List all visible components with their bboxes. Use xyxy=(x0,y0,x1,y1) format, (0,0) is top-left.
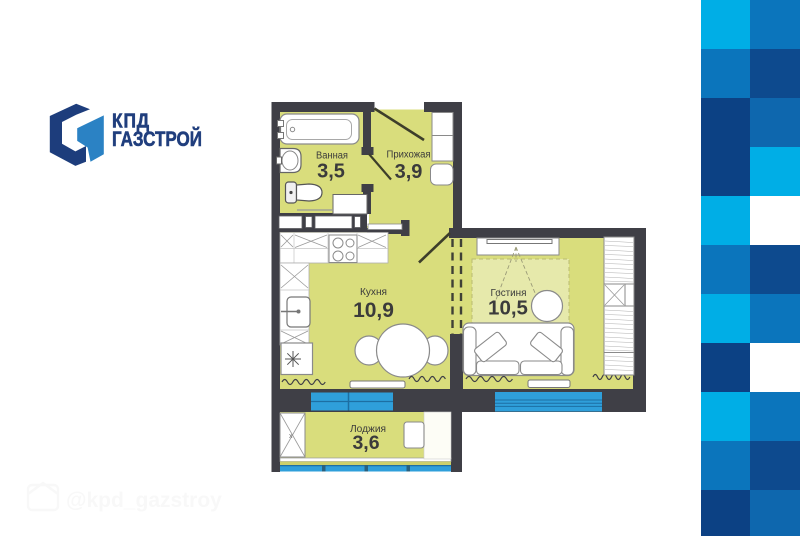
svg-text:ГАЗСТРОЙ: ГАЗСТРОЙ xyxy=(112,127,202,151)
svg-text:x: x xyxy=(289,433,293,440)
svg-text:@kpd_gazstroy: @kpd_gazstroy xyxy=(66,489,222,512)
svg-text:3,5: 3,5 xyxy=(317,161,345,183)
svg-text:Кухня: Кухня xyxy=(360,287,387,298)
svg-text:Прихожая: Прихожая xyxy=(387,150,431,161)
svg-text:3,6: 3,6 xyxy=(352,432,379,454)
svg-text:10,5: 10,5 xyxy=(488,297,528,320)
svg-text:10,9: 10,9 xyxy=(353,299,394,322)
svg-text:3,9: 3,9 xyxy=(395,161,423,183)
